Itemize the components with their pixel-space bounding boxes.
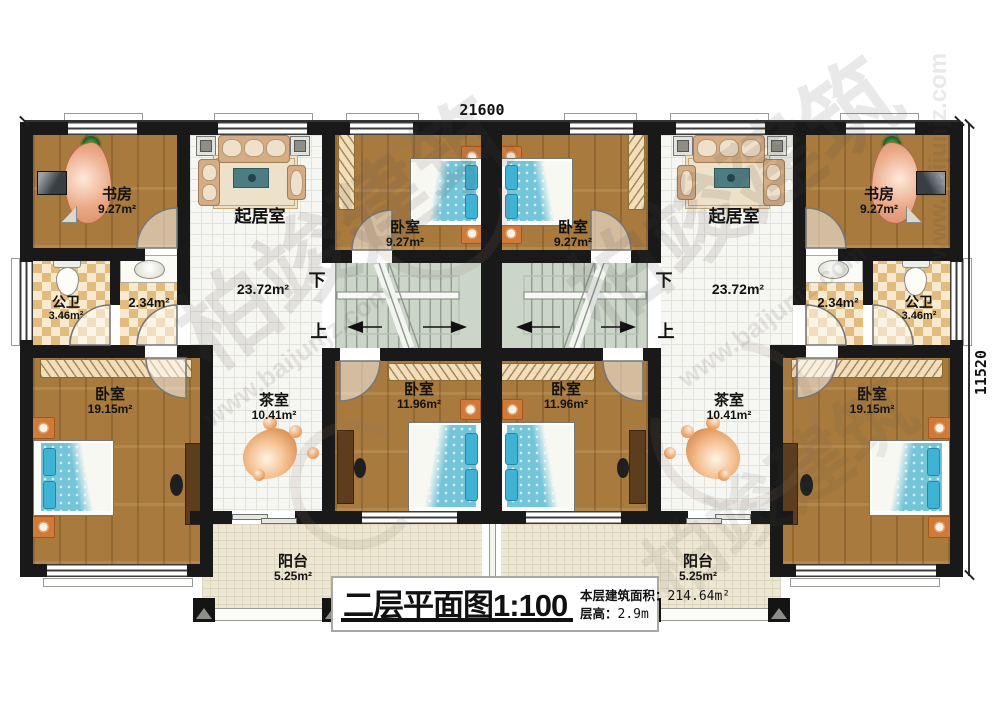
wall bbox=[20, 122, 33, 577]
balcony-post bbox=[193, 598, 215, 622]
stair-symbol bbox=[335, 263, 481, 348]
wall bbox=[33, 248, 145, 261]
wardrobe bbox=[388, 363, 482, 381]
nightstand bbox=[928, 417, 951, 439]
coffee-table bbox=[233, 168, 269, 188]
bed bbox=[410, 158, 484, 226]
sofa-three-seat bbox=[218, 135, 290, 163]
dimension-line-top bbox=[24, 120, 960, 122]
window bbox=[570, 122, 633, 135]
room-label-tea-right: 茶室 10.41m² bbox=[707, 392, 752, 423]
window bbox=[68, 122, 137, 135]
room-label-living-left: 起居室 bbox=[235, 207, 286, 227]
door-arc bbox=[137, 305, 177, 345]
floor-plan: 21600 11520 书房 9.27m² 起居室 23.72m² 公卫 3.4… bbox=[0, 0, 1000, 706]
sofa-two-seat bbox=[763, 159, 785, 206]
door-arc bbox=[591, 210, 631, 250]
wall bbox=[177, 122, 190, 305]
room-label-study-right: 书房 9.27m² bbox=[860, 186, 898, 217]
wall bbox=[33, 345, 145, 358]
dimension-line-right bbox=[968, 124, 970, 576]
wall bbox=[322, 122, 335, 263]
room-label-study-left: 书房 9.27m² bbox=[98, 186, 136, 217]
wall bbox=[380, 348, 482, 361]
window bbox=[526, 511, 621, 524]
stair-down-right: 下 bbox=[656, 266, 673, 291]
wall bbox=[631, 250, 661, 263]
window-sill bbox=[11, 258, 20, 346]
room-area-living-right: 23.72m² bbox=[712, 281, 764, 297]
side-table bbox=[673, 136, 693, 156]
nightstand bbox=[460, 399, 481, 420]
room-label-balcony-left: 阳台 5.25m² bbox=[274, 553, 312, 584]
desk-chair bbox=[800, 474, 813, 496]
wall bbox=[457, 511, 482, 524]
desk-chair bbox=[617, 458, 629, 478]
room-label-bedroom-big-left: 卧室 19.15m² bbox=[88, 386, 133, 417]
wall bbox=[322, 250, 352, 263]
window bbox=[676, 122, 765, 135]
window bbox=[218, 122, 307, 135]
side-table bbox=[290, 136, 310, 156]
wall bbox=[392, 250, 482, 263]
wall bbox=[110, 255, 120, 305]
unit-left-graphics bbox=[20, 122, 482, 622]
room-area-vanity-left: 2.34m² bbox=[128, 296, 169, 311]
window bbox=[20, 262, 33, 340]
room-label-bedroom-mid-right: 卧室 9.27m² bbox=[554, 219, 592, 250]
window-sill bbox=[43, 578, 193, 587]
bed bbox=[499, 422, 575, 512]
window bbox=[47, 564, 187, 577]
decor-ball bbox=[681, 425, 694, 438]
bed bbox=[499, 158, 573, 226]
wall bbox=[322, 348, 335, 524]
door-arc bbox=[137, 208, 177, 248]
room-label-bedroom-mid-left: 卧室 9.27m² bbox=[386, 219, 424, 250]
sofa-two-seat bbox=[198, 159, 220, 206]
decor-ball bbox=[664, 447, 676, 459]
room-label-bath-right: 公卫 3.46m² bbox=[902, 294, 937, 323]
bed bbox=[408, 422, 484, 512]
bed bbox=[33, 440, 114, 516]
decor-ball bbox=[253, 469, 265, 481]
door-arc bbox=[806, 305, 846, 345]
side-table bbox=[196, 136, 216, 156]
wall bbox=[793, 122, 806, 305]
decor-ball bbox=[718, 469, 730, 481]
door-arc bbox=[603, 361, 643, 401]
room-label-bath-left: 公卫 3.46m² bbox=[49, 294, 84, 323]
bedroom-desk bbox=[337, 430, 354, 504]
window-sill bbox=[790, 578, 940, 587]
wardrobe bbox=[628, 133, 645, 210]
dimension-width: 21600 bbox=[459, 101, 504, 119]
room-area-vanity-right: 2.34m² bbox=[817, 296, 858, 311]
wardrobe bbox=[338, 133, 355, 210]
party-wall bbox=[481, 122, 502, 524]
window bbox=[950, 262, 963, 340]
chaise-chair bbox=[287, 165, 306, 200]
room-label-bedroom-low-left: 卧室 11.96m² bbox=[397, 381, 441, 412]
wall bbox=[200, 345, 213, 577]
stair-symbol bbox=[502, 263, 648, 348]
desk-chair bbox=[170, 474, 183, 496]
coffee-table bbox=[714, 168, 750, 188]
balcony-post bbox=[768, 598, 790, 622]
wall bbox=[501, 511, 526, 524]
room-label-balcony-right: 阳台 5.25m² bbox=[679, 553, 717, 584]
title-underline bbox=[341, 618, 573, 622]
nightstand bbox=[32, 516, 55, 538]
decor-ball bbox=[289, 425, 302, 438]
window bbox=[350, 122, 413, 135]
desk-chair bbox=[354, 458, 366, 478]
room-label-tea-left: 茶室 10.41m² bbox=[252, 392, 297, 423]
bedroom-desk bbox=[629, 430, 646, 504]
wall bbox=[648, 122, 661, 263]
wall bbox=[770, 345, 783, 577]
window bbox=[362, 511, 457, 524]
room-label-living-right: 起居室 bbox=[709, 207, 760, 227]
computer-monitor bbox=[916, 171, 946, 195]
room-label-bedroom-low-right: 卧室 11.96m² bbox=[544, 381, 588, 412]
floor-area-line: 本层建筑面积：214.64m² bbox=[580, 585, 730, 604]
door-arc bbox=[806, 208, 846, 248]
side-table bbox=[767, 136, 787, 156]
wall bbox=[863, 255, 873, 305]
wall bbox=[838, 345, 950, 358]
sliding-door bbox=[686, 518, 722, 524]
wall bbox=[190, 511, 232, 524]
decor-ball bbox=[307, 447, 319, 459]
wall bbox=[501, 348, 603, 361]
wall bbox=[643, 348, 648, 361]
door-arc bbox=[797, 358, 837, 398]
room-label-bedroom-big-right: 卧室 19.15m² bbox=[850, 386, 895, 417]
nightstand bbox=[928, 516, 951, 538]
door-arc bbox=[146, 358, 186, 398]
sofa-three-seat bbox=[693, 135, 765, 163]
wall bbox=[335, 348, 340, 361]
bed bbox=[869, 440, 950, 516]
wall bbox=[501, 250, 591, 263]
wall bbox=[295, 511, 362, 524]
wall bbox=[621, 511, 688, 524]
nightstand bbox=[500, 223, 522, 244]
wall bbox=[751, 511, 793, 524]
window bbox=[846, 122, 915, 135]
room-area-living-left: 23.72m² bbox=[237, 281, 289, 297]
nightstand bbox=[461, 223, 483, 244]
floor-height-line: 层高：2.9m bbox=[580, 603, 649, 622]
stair-up-left: 上 bbox=[311, 317, 328, 342]
wall bbox=[950, 122, 963, 577]
door-arc bbox=[340, 361, 380, 401]
stair-down-left: 下 bbox=[309, 266, 326, 291]
nightstand bbox=[502, 399, 523, 420]
wall bbox=[838, 248, 950, 261]
chaise-chair bbox=[677, 165, 696, 200]
stair-up-right: 上 bbox=[658, 317, 675, 342]
dimension-height: 11520 bbox=[972, 350, 990, 395]
wardrobe bbox=[501, 363, 595, 381]
nightstand bbox=[32, 417, 55, 439]
sink-basin bbox=[818, 260, 849, 279]
wall bbox=[648, 348, 661, 524]
window bbox=[796, 564, 936, 577]
computer-monitor bbox=[37, 171, 67, 195]
sliding-door bbox=[261, 518, 297, 524]
sink-basin bbox=[134, 260, 165, 279]
